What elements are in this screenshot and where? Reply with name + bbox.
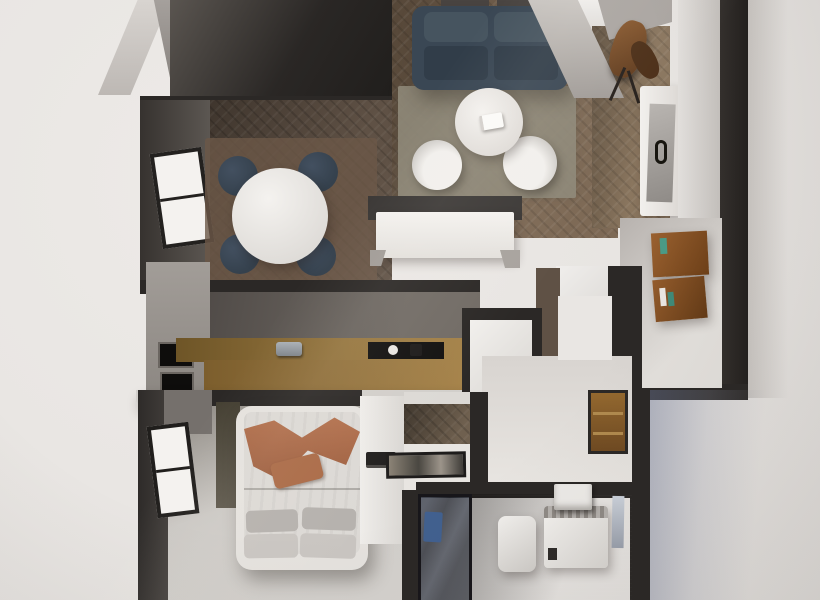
loggia-floor — [170, 0, 396, 100]
oak-counter-front — [204, 360, 476, 392]
kitchen-backsplash — [168, 292, 480, 344]
kettle — [388, 345, 398, 355]
lounge-chair — [412, 140, 462, 190]
console-handle — [655, 140, 667, 164]
hallway-white-wall — [558, 296, 612, 360]
outer-wall-right — [720, 0, 748, 396]
decorative-floor-tray — [386, 451, 466, 478]
blue-towel — [423, 512, 443, 543]
exterior-shadow-right — [748, 0, 788, 398]
bed-pillow — [244, 534, 298, 559]
door-panel-line — [593, 432, 623, 435]
waste-bin — [498, 516, 536, 572]
cooktop — [368, 342, 444, 359]
sheet-fold — [244, 488, 360, 490]
sink-faucet — [276, 342, 302, 356]
door-panel-line — [593, 412, 623, 415]
books-teal — [667, 292, 674, 306]
sofa-seat-cushion — [424, 46, 488, 80]
washing-machine-drawer — [548, 548, 557, 560]
entrance-door — [588, 390, 628, 454]
sofa-seat-cushion — [494, 46, 558, 80]
bed-pillow — [246, 509, 299, 533]
dining-table — [232, 168, 328, 264]
floorplan-render — [0, 0, 820, 600]
bathroom-left-wall — [402, 490, 418, 600]
tv-sideboard — [376, 212, 514, 258]
mirror — [612, 496, 625, 548]
books-teal — [660, 238, 668, 254]
wall-sink — [554, 484, 592, 510]
glass-shower — [418, 494, 472, 600]
entry-right-wall-face — [678, 0, 722, 226]
exterior-shadow-bottom — [650, 390, 820, 600]
bed-pillow — [300, 533, 357, 559]
sideboard-leg — [500, 250, 520, 268]
pot — [410, 344, 422, 356]
sofa-back-cushion — [424, 12, 488, 42]
dressing-right-wall — [470, 392, 488, 492]
bed-pillow — [302, 507, 357, 531]
